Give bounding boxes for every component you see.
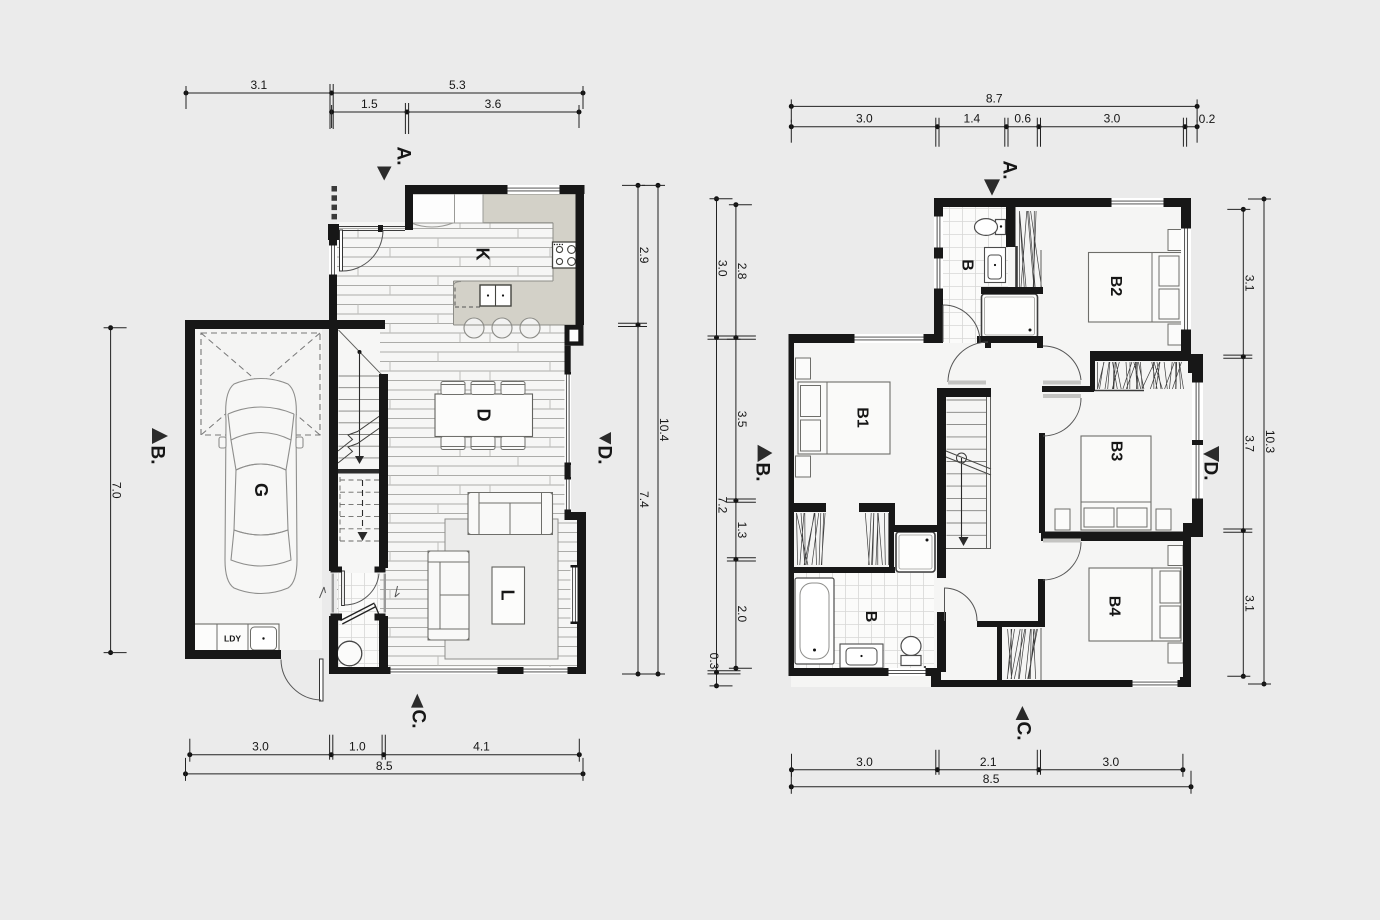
svg-text:3.1: 3.1 [1242,275,1256,292]
svg-text:10.3: 10.3 [1263,430,1277,454]
svg-text:3.1: 3.1 [250,78,267,92]
svg-text:3.0: 3.0 [1104,112,1121,126]
svg-text:A.: A. [393,147,414,166]
svg-text:D.: D. [1200,462,1221,481]
svg-text:3.5: 3.5 [735,411,749,428]
svg-text:2.0: 2.0 [735,605,749,622]
svg-text:2.1: 2.1 [980,755,997,769]
svg-text:2.8: 2.8 [735,263,749,280]
svg-text:B: B [959,259,976,271]
svg-text:3.7: 3.7 [1242,435,1256,452]
svg-text:3.1: 3.1 [1242,595,1256,612]
svg-text:LDY: LDY [224,634,241,644]
svg-text:C.: C. [1013,722,1034,741]
svg-text:K: K [473,248,493,261]
svg-text:4.1: 4.1 [473,740,490,754]
svg-text:3.0: 3.0 [1103,755,1120,769]
svg-text:B.: B. [147,446,168,465]
svg-text:7.4: 7.4 [637,491,651,508]
svg-text:0.6: 0.6 [1014,112,1031,126]
svg-text:D: D [474,409,494,422]
svg-text:0.3: 0.3 [707,653,721,670]
svg-text:3.0: 3.0 [716,260,730,277]
svg-text:L: L [498,590,518,601]
svg-text:G: G [251,483,271,497]
svg-text:7.0: 7.0 [110,482,124,499]
svg-text:B2: B2 [1107,276,1124,297]
svg-text:3.0: 3.0 [856,112,873,126]
svg-text:8.5: 8.5 [983,772,1000,786]
svg-text:B1: B1 [854,407,871,428]
svg-text:5.3: 5.3 [449,78,466,92]
svg-text:3.0: 3.0 [856,755,873,769]
svg-text:B.: B. [752,463,773,482]
svg-text:B3: B3 [1108,441,1125,462]
svg-text:2.9: 2.9 [637,247,651,264]
svg-text:8.7: 8.7 [986,91,1003,105]
svg-text:1.4: 1.4 [964,112,981,126]
svg-text:D.: D. [594,446,615,465]
svg-text:A.: A. [999,161,1020,180]
svg-text:1.3: 1.3 [735,522,749,539]
svg-text:1.5: 1.5 [361,97,378,111]
svg-text:C.: C. [408,710,429,729]
svg-text:3.6: 3.6 [485,97,502,111]
svg-text:3.0: 3.0 [252,740,269,754]
svg-text:10.4: 10.4 [657,418,671,442]
svg-text:0.2: 0.2 [1199,112,1216,126]
svg-text:1.0: 1.0 [349,740,366,754]
svg-text:B4: B4 [1106,596,1123,617]
svg-text:B: B [862,611,879,623]
svg-text:8.5: 8.5 [376,759,393,773]
